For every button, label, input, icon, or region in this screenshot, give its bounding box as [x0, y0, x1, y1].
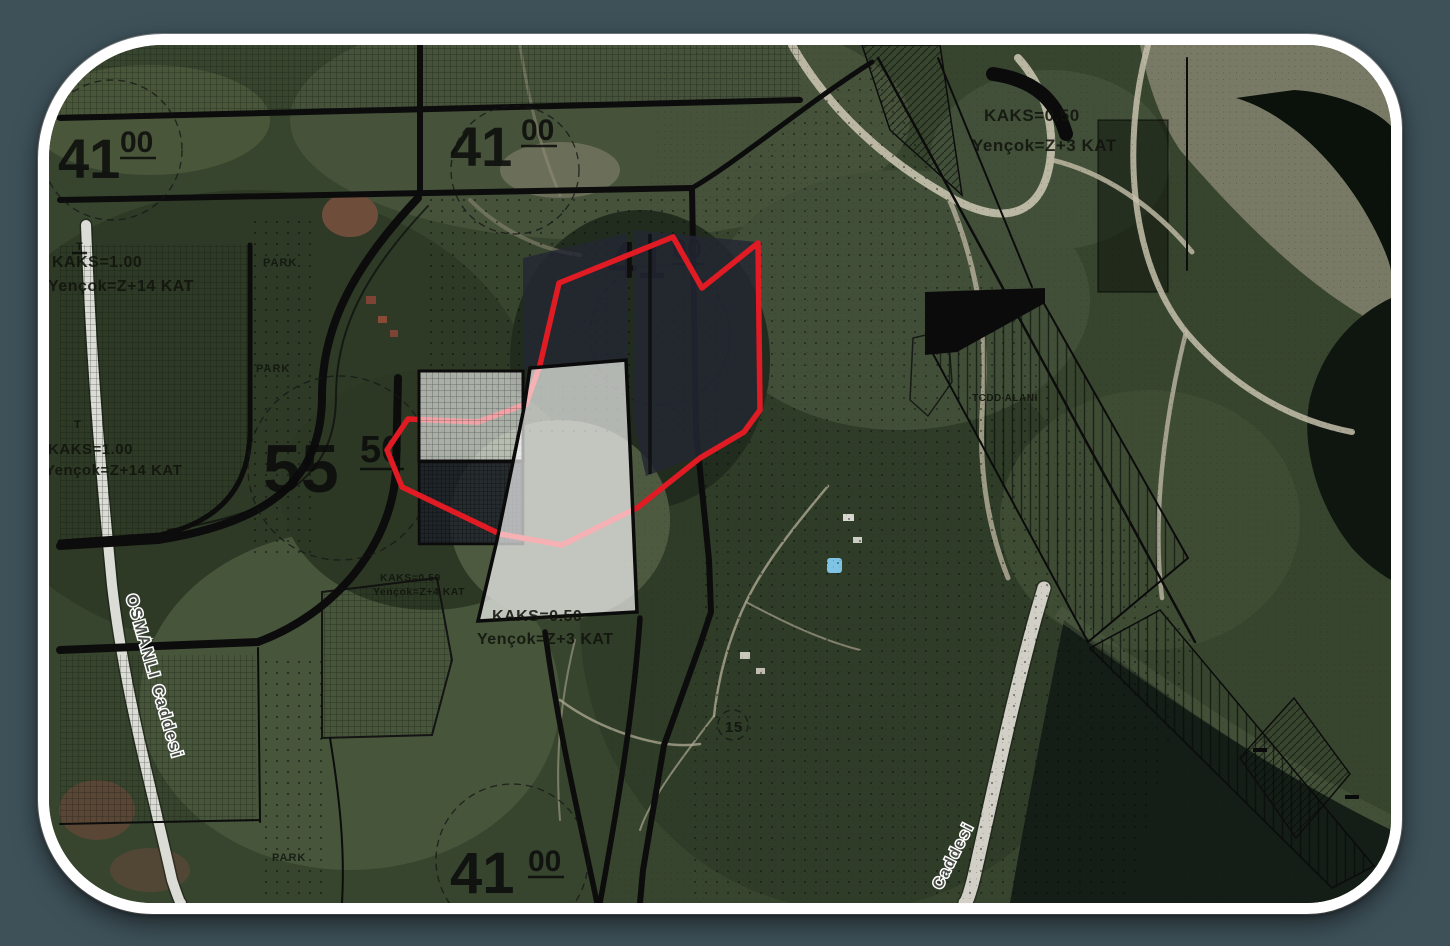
park-area-label: PARK	[272, 852, 306, 864]
block-sub-number: 00	[521, 114, 554, 147]
block-number: 55	[263, 431, 339, 507]
road-number-label: 15	[725, 719, 743, 736]
block-number: 41	[450, 841, 515, 903]
park-area-label: PARK	[263, 257, 297, 269]
survey-tick-mark	[1253, 748, 1267, 752]
block-number: 41	[58, 127, 120, 190]
block-sub-number: 00	[528, 845, 561, 878]
zoning-height-label: Yençok=Z+14 KAT	[49, 278, 194, 295]
block-sub-number: 00	[120, 126, 153, 159]
survey-t-mark: T	[74, 419, 81, 431]
zoning-kaks-label: KAKS=1.00	[52, 254, 142, 271]
zoning-map-canvas[interactable]: 41 00 41 00 41 00 41 00 55 50 KAKS=1.00 …	[49, 45, 1391, 903]
zoning-height-label: Yençok=Z+3 KAT	[972, 136, 1117, 155]
zoning-kaks-label: KAKS=0.50	[380, 572, 441, 584]
zoning-kaks-label: KAKS=1.00	[49, 441, 133, 458]
zoning-kaks-label: KAKS=0.50	[492, 608, 582, 625]
zoning-height-label: Yençok=Z+4 KAT	[373, 586, 465, 598]
survey-t-mark: T	[76, 241, 83, 253]
survey-tick-mark	[1345, 795, 1359, 799]
zoning-kaks-label: KAKS=0.50	[984, 106, 1080, 125]
highlight-parcel-west[interactable]	[419, 371, 523, 461]
block-number: 41	[450, 115, 512, 178]
park-area-label: PARK	[256, 363, 290, 375]
zoning-height-label: Yençok=Z+14 KAT	[49, 462, 182, 479]
tcdd-area-label: TCDD ALANI	[972, 393, 1038, 404]
zoning-height-label: Yençok=Z+3 KAT	[477, 631, 614, 648]
map-window-frame: 41 00 41 00 41 00 41 00 55 50 KAKS=1.00 …	[38, 34, 1402, 914]
